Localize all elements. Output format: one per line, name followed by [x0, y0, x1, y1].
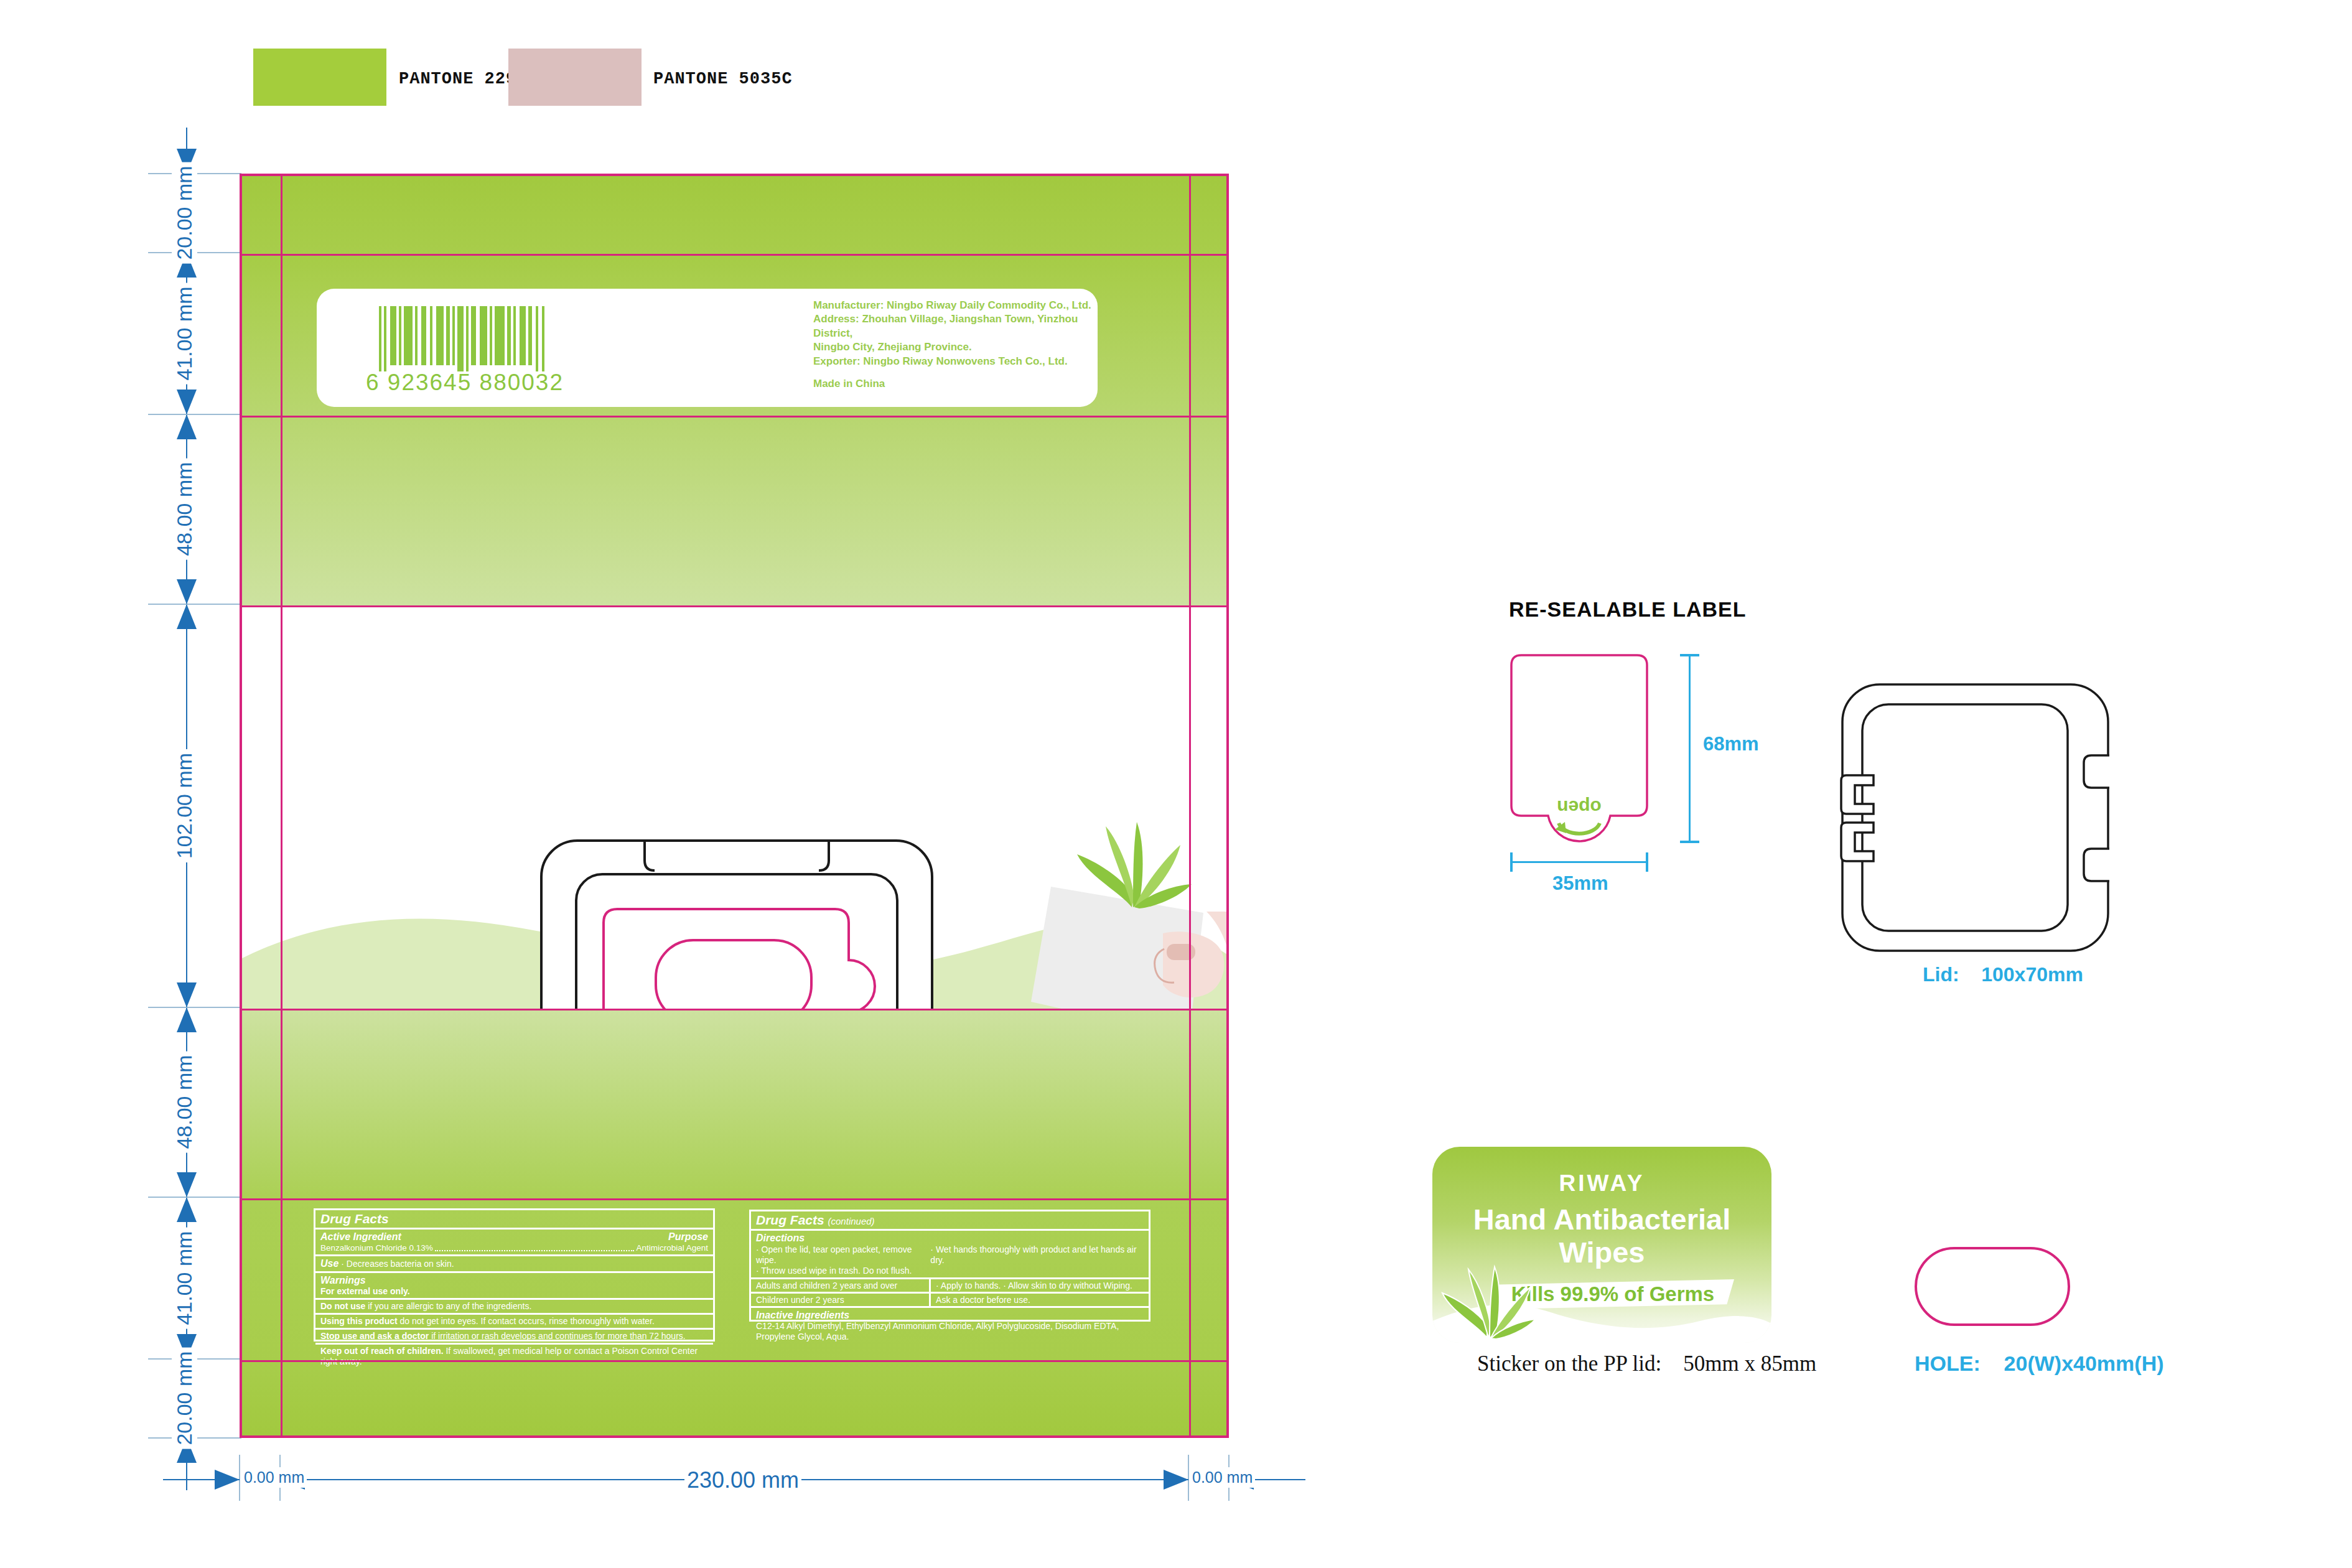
lid-top-view-drawing [538, 836, 936, 1010]
directions-table: Adults and children 2 years and over · A… [751, 1277, 1149, 1306]
fold-line-right [1189, 176, 1191, 1435]
bottom-seal-band [242, 1361, 1226, 1435]
directions-row: Directions · Open the lid, tear open pac… [751, 1229, 1149, 1277]
address-line: Address: Zhouhan Village, Jiangshan Town… [813, 312, 1106, 340]
dim-label-102mm: 102.00 mm [172, 749, 197, 862]
packaging-dieline-sheet: PANTONE 2299C PANTONE 5035C 20.00 mm 41.… [0, 0, 2352, 1568]
sticker-aloe [1437, 1262, 1537, 1340]
drug-facts-continued-title: Drug Facts (continued) [751, 1211, 1149, 1229]
drug-facts-panel: Drug Facts Active Ingredient Purpose Ben… [314, 1208, 715, 1342]
bottom-dim-center: 230.00 mm [684, 1466, 801, 1495]
manufacturer-block: Manufacturer: Ningbo Riway Daily Commodi… [813, 299, 1106, 391]
hole-caption: HOLE: 20(W)x40mm(H) [1915, 1351, 2164, 1376]
open-label: open [1554, 796, 1604, 818]
front-panel-band: • Super Soft Nonwoven • Free Hand Washin… [242, 607, 1226, 1010]
drug-facts-continued-panel: Drug Facts (continued) Directions · Open… [749, 1210, 1150, 1322]
lower-gradient-band [242, 1010, 1226, 1200]
sticker-caption: Sticker on the PP lid: 50mm x 85mm [1477, 1351, 1816, 1376]
dim-label-48mm-bottom: 48.00 mm [172, 1051, 197, 1152]
dim-label-20mm-top: 20.00 mm [172, 162, 197, 263]
hole-outline [1915, 1247, 2070, 1326]
warning-item: Keep out of reach of children. If swallo… [315, 1343, 713, 1368]
active-ingredient-row: Active Ingredient Purpose Benzalkonium C… [315, 1228, 713, 1254]
lid-caption: Lid: 100x70mm [1923, 963, 2083, 986]
barcode-panel: 6 923645 880032 Manufacturer: Ningbo Riw… [317, 289, 1098, 407]
dim-label-41mm-top: 41.00 mm [172, 282, 197, 384]
use-row: Use · Decreases bacteria on skin. [315, 1254, 713, 1271]
pantone-pink-label: PANTONE 5035C [653, 70, 793, 88]
bottom-dim-left: 0.00 mm [241, 1467, 307, 1488]
bottom-dim-right: 0.00 mm [1190, 1467, 1255, 1488]
warning-item: Stop use and ask a doctor if irritation … [315, 1328, 713, 1343]
pantone-green-swatch [253, 49, 386, 106]
width-dim-label: 35mm [1552, 872, 1608, 895]
address-line2: Ningbo City, Zhejiang Province. [813, 340, 1106, 354]
width-dim-line [1510, 861, 1648, 863]
fold-line [242, 1009, 1226, 1010]
pantone-pink-swatch [508, 49, 642, 106]
manufacturer-line: Manufacturer: Ningbo Riway Daily Commodi… [813, 299, 1106, 312]
sticker-title-line1: Hand Antibacterial [1432, 1204, 1771, 1234]
top-seal-band [242, 176, 1226, 255]
brand-logo: RIWAY [1432, 1170, 1771, 1197]
lid-sticker-artwork: RIWAY Hand Antibacterial Wipes Kills 99.… [1432, 1147, 1771, 1343]
exporter-line: Exporter: Ningbo Riway Nonwovens Tech Co… [813, 355, 1106, 368]
height-dim-line [1689, 654, 1691, 843]
fold-line [242, 605, 1226, 607]
resealable-label-outline [1510, 654, 1648, 850]
made-in-china: Made in China [813, 377, 1106, 391]
aloe-plant-illustration [1070, 817, 1194, 910]
warning-item: Using this product do not get into eyes.… [315, 1313, 713, 1328]
dim-label-41mm-bottom: 41.00 mm [172, 1227, 197, 1328]
resealable-label-title: RE-SEALABLE LABEL [1509, 597, 1747, 622]
dim-label-20mm-bottom: 20.00 mm [172, 1347, 197, 1449]
height-dim-label: 68mm [1703, 733, 1759, 755]
lid-side-drawing [1840, 682, 2111, 953]
fold-line [242, 1360, 1226, 1362]
pouch-dieline: • Super Soft Nonwoven • Free Hand Washin… [240, 174, 1229, 1438]
fold-line [242, 1198, 1226, 1200]
fold-line-left [281, 176, 282, 1435]
barcode-number: 6 923645 880032 [365, 370, 564, 396]
inactive-ingredients-row: Inactive Ingredients C12-14 Alkyl Dimeth… [751, 1306, 1149, 1344]
barcode [379, 306, 547, 371]
fold-line [242, 416, 1226, 418]
drug-facts-title: Drug Facts [315, 1210, 713, 1228]
warnings-row: Warnings For external use only. [315, 1271, 713, 1299]
warning-item: Do not use if you are allergic to any of… [315, 1298, 713, 1313]
fold-line [242, 254, 1226, 256]
dim-label-48mm-top: 48.00 mm [172, 458, 197, 559]
